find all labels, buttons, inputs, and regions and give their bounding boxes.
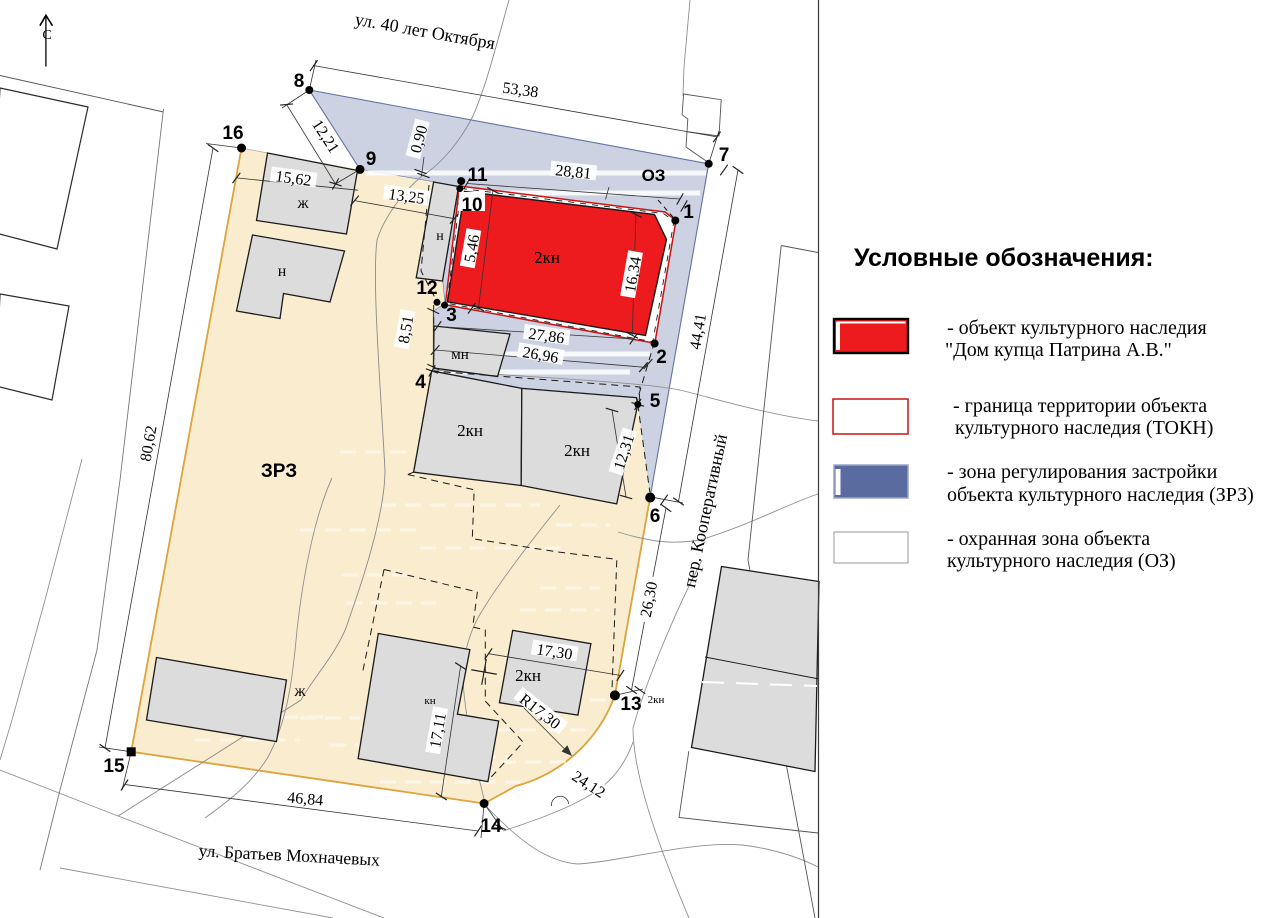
svg-text:ж: ж	[296, 195, 309, 212]
svg-text:мн: мн	[451, 347, 469, 363]
svg-text:10: 10	[461, 195, 482, 216]
svg-text:ЗРЗ: ЗРЗ	[261, 461, 297, 482]
svg-text:1: 1	[683, 202, 694, 223]
svg-text:5: 5	[650, 391, 661, 412]
svg-text:8: 8	[294, 71, 305, 92]
svg-text:- охранная зона объекта: - охранная зона объекта	[947, 528, 1150, 550]
svg-text:- зона регулирования застройки: - зона регулирования застройки	[947, 461, 1218, 483]
svg-text:Условные обозначения:: Условные обозначения:	[854, 244, 1154, 272]
svg-text:ж: ж	[293, 683, 306, 700]
svg-text:"Дом купца Патрина А.В.": "Дом купца Патрина А.В."	[945, 339, 1172, 361]
svg-text:3: 3	[446, 305, 457, 326]
svg-text:6: 6	[650, 506, 661, 527]
svg-text:16: 16	[222, 123, 243, 144]
svg-text:н: н	[278, 263, 287, 280]
svg-text:ОЗ: ОЗ	[642, 166, 666, 185]
svg-text:46,84: 46,84	[287, 789, 324, 809]
svg-text:н: н	[436, 229, 444, 244]
svg-text:2кн: 2кн	[515, 666, 541, 685]
svg-text:9: 9	[366, 149, 377, 170]
svg-text:кн: кн	[424, 695, 435, 707]
svg-text:2кн: 2кн	[457, 421, 483, 440]
svg-text:культурного наследия (ОЗ): культурного наследия (ОЗ)	[947, 550, 1176, 572]
svg-text:7: 7	[719, 145, 730, 166]
svg-text:2кн: 2кн	[534, 248, 560, 267]
svg-text:2кн: 2кн	[648, 694, 665, 706]
svg-text:объекта культурного наследия (: объекта культурного наследия (ЗРЗ)	[947, 484, 1254, 506]
svg-text:13: 13	[620, 694, 641, 715]
svg-text:11: 11	[467, 165, 488, 186]
svg-text:2кн: 2кн	[564, 441, 590, 460]
svg-text:культурного наследия (ТОКН): культурного наследия (ТОКН)	[955, 417, 1213, 439]
svg-text:- объект культурного наследия: - объект культурного наследия	[947, 317, 1207, 339]
svg-text:12: 12	[416, 278, 437, 299]
svg-text:14: 14	[480, 816, 502, 837]
svg-text:2: 2	[656, 347, 667, 368]
svg-text:15: 15	[103, 756, 125, 777]
svg-text:С: С	[42, 28, 51, 43]
svg-text:- граница территории объекта: - граница территории объекта	[953, 395, 1207, 417]
svg-text:4: 4	[415, 372, 426, 393]
